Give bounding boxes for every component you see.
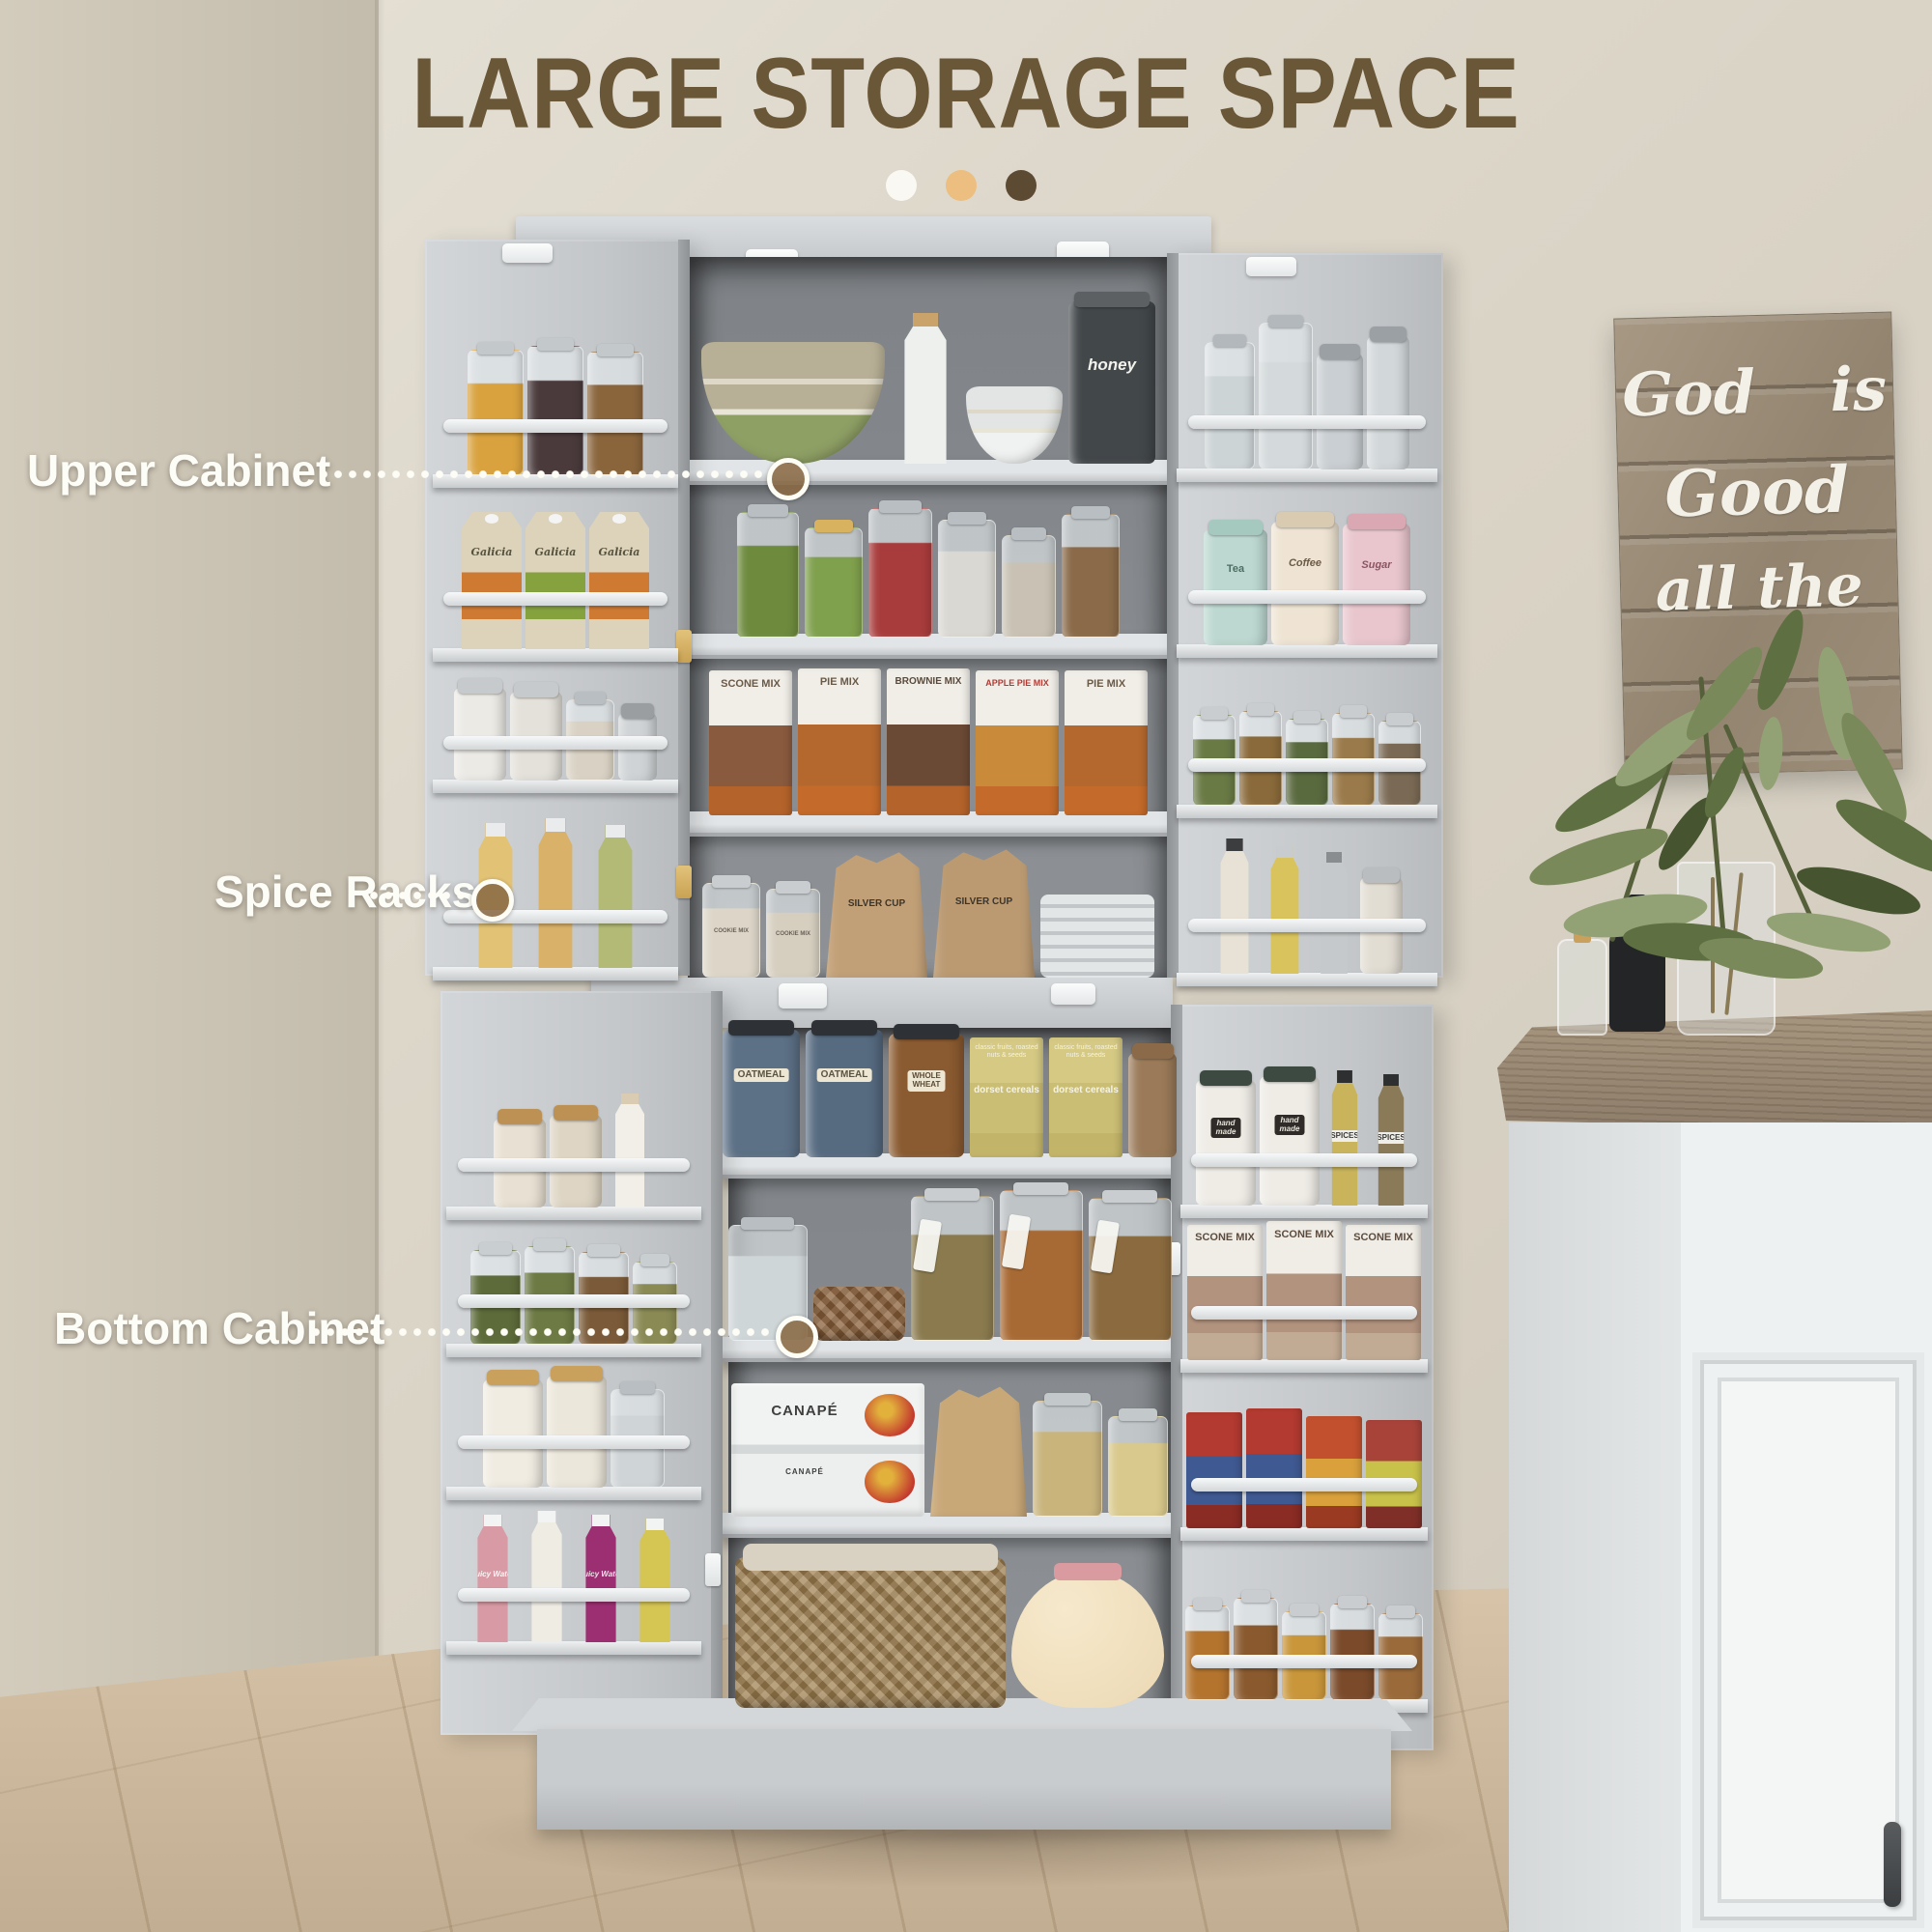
spice-rack-row: Juicy WaterJuicy Water bbox=[450, 1492, 697, 1642]
headline-dot-brown bbox=[1006, 170, 1037, 201]
wicker-bowl bbox=[813, 1287, 905, 1341]
scone-mix-box: SCONE MIX bbox=[1266, 1221, 1342, 1360]
hinge bbox=[705, 1553, 721, 1586]
handmade-canister: hand made bbox=[1260, 1076, 1320, 1206]
upper-shelf-4: COOKIE MIXCOOKIE MIXSILVER CUPSILVER CUP bbox=[688, 837, 1169, 978]
spice-rack-row bbox=[1180, 819, 1434, 974]
grinder bbox=[1262, 846, 1308, 974]
wood-lid-canister bbox=[483, 1379, 543, 1488]
upper-shelf-2 bbox=[688, 502, 1169, 638]
spice-jar bbox=[1332, 713, 1375, 806]
door-latch bbox=[1246, 257, 1296, 276]
coffee-bag: SILVER CUP bbox=[826, 847, 927, 978]
grain-jar bbox=[468, 350, 524, 475]
spices-bottle: SPICES bbox=[1323, 1070, 1366, 1206]
sugar-canister: Sugar bbox=[1343, 524, 1410, 645]
coffee-bag: SILVER CUP bbox=[933, 844, 1035, 978]
spice-jar bbox=[1239, 711, 1282, 806]
sign-text: God is bbox=[1615, 354, 1893, 431]
callout-marker bbox=[776, 1316, 818, 1358]
clip-jar bbox=[611, 1389, 665, 1488]
brownie-mix-box: BROWNIE MIX bbox=[887, 668, 970, 815]
scone-mix-box: SCONE MIX bbox=[1187, 1225, 1263, 1360]
spice-rack-row bbox=[1184, 1391, 1424, 1528]
handmade-canister: hand made bbox=[1196, 1080, 1256, 1206]
spice-rack-row bbox=[450, 1074, 697, 1207]
headline-dot-tan bbox=[946, 170, 977, 201]
canape-boxes: CANAPÉCANAPÉ bbox=[731, 1383, 924, 1517]
juice-bottle: Juicy Water bbox=[468, 1515, 518, 1642]
door-latch bbox=[502, 243, 553, 263]
glass-jar bbox=[1259, 323, 1313, 469]
small-bowl-stack bbox=[966, 386, 1063, 464]
spice-jar bbox=[1185, 1605, 1230, 1700]
juice-carton: Galicia bbox=[462, 512, 522, 649]
bean-bottle bbox=[587, 825, 643, 968]
door-latch bbox=[1051, 983, 1095, 1005]
cereal-box: dorset cerealsclassic fruits, roasted nu… bbox=[1049, 1037, 1122, 1157]
glass-bottle bbox=[1557, 939, 1607, 1036]
callout-line bbox=[311, 1327, 773, 1337]
sign-text: all the bbox=[1620, 552, 1898, 626]
juice-bottle bbox=[630, 1519, 680, 1642]
cookie-mix-jar: COOKIE MIX bbox=[766, 889, 820, 978]
cracker-packet bbox=[1306, 1416, 1362, 1528]
headline: LARGE STORAGE SPACE bbox=[412, 37, 1520, 152]
callout-upper-cabinet: Upper Cabinet bbox=[27, 444, 330, 497]
wood-lid-canister bbox=[547, 1376, 607, 1488]
salt-jar bbox=[510, 692, 562, 781]
milk-bottle bbox=[606, 1094, 654, 1207]
spice-rack-row: hand madehand madeSPICESSPICES bbox=[1184, 1061, 1424, 1206]
cracker-packet bbox=[1366, 1420, 1422, 1528]
cookie-mix-jar: COOKIE MIX bbox=[702, 883, 760, 978]
oatmeal-canister: OATMEAL bbox=[806, 1030, 883, 1157]
grain-jar bbox=[1108, 1416, 1168, 1517]
spice-rack-row bbox=[450, 1209, 697, 1345]
crock bbox=[1128, 1053, 1177, 1157]
small-jar bbox=[566, 699, 614, 781]
pecan-jar bbox=[1000, 1190, 1083, 1341]
juice-bottle bbox=[522, 1511, 572, 1642]
spice-rack-row bbox=[1180, 319, 1434, 469]
scone-mix-box: SCONE MIX bbox=[1346, 1225, 1421, 1360]
preserve-jar bbox=[868, 508, 932, 638]
upper-shelf-1: honey bbox=[688, 290, 1169, 464]
spice-jar bbox=[1378, 721, 1421, 806]
oatmeal-canister: OATMEAL bbox=[723, 1030, 800, 1157]
cookie-jar bbox=[1089, 1198, 1172, 1341]
tea-canister: Tea bbox=[1204, 529, 1267, 645]
cracker-packet bbox=[1246, 1408, 1302, 1528]
small-tin bbox=[618, 713, 657, 781]
juice-carton: Galicia bbox=[589, 512, 649, 649]
spice-rack-row bbox=[1184, 1580, 1424, 1700]
clay-pot bbox=[1011, 1571, 1164, 1708]
coffee-canister: Coffee bbox=[1271, 522, 1339, 645]
grinder bbox=[1312, 852, 1356, 974]
spice-jar bbox=[1286, 719, 1328, 806]
spice-rack-row: TeaCoffeeSugar bbox=[1180, 493, 1434, 645]
cabinet-base bbox=[537, 1729, 1391, 1830]
lower-shelf-4 bbox=[730, 1549, 1169, 1708]
callout-marker bbox=[767, 458, 810, 500]
shaker bbox=[1360, 877, 1403, 974]
spice-jar bbox=[1378, 1613, 1423, 1700]
callout-line bbox=[319, 469, 765, 479]
wall-corner bbox=[375, 0, 384, 1719]
spice-rack-row bbox=[437, 667, 674, 781]
pie-mix-box: PIE MIX bbox=[1065, 670, 1148, 815]
callout-marker bbox=[471, 879, 514, 922]
pie-mix-box: PIE MIX bbox=[798, 668, 881, 815]
cork-jar bbox=[494, 1119, 546, 1207]
scone-mix-box: SCONE MIX bbox=[709, 670, 792, 815]
headline-dot-cream bbox=[886, 170, 917, 201]
spice-rack-row: GaliciaGaliciaGalicia bbox=[437, 488, 674, 649]
storage-basket bbox=[735, 1557, 1006, 1708]
pasta-bottle bbox=[527, 818, 583, 968]
kraft-bag bbox=[930, 1381, 1027, 1517]
spice-rack-row bbox=[437, 319, 674, 475]
hinge bbox=[676, 630, 692, 663]
juice-carton: Galicia bbox=[526, 512, 585, 649]
cork-jar bbox=[550, 1115, 602, 1207]
bowl-stack bbox=[701, 342, 885, 464]
spice-jar bbox=[1282, 1611, 1326, 1700]
cereal-box: dorset cerealsclassic fruits, roasted nu… bbox=[970, 1037, 1043, 1157]
milk-jug bbox=[891, 313, 960, 464]
cookie-jar bbox=[911, 1196, 994, 1341]
hinge bbox=[676, 866, 692, 898]
upper-shelf-3: SCONE MIXPIE MIXBROWNIE MIXAPPLE PIE MIX… bbox=[688, 665, 1169, 815]
product-infographic: LARGE STORAGE SPACE God is Good all the … bbox=[0, 0, 1932, 1932]
lower-shelf-3: CANAPÉCANAPÉ bbox=[730, 1376, 1169, 1517]
spices-bottle: SPICES bbox=[1370, 1074, 1412, 1206]
sugar-jar bbox=[938, 520, 996, 638]
shaker bbox=[1317, 354, 1363, 469]
lower-shelf-1: OATMEALOATMEALWHOLE WHEATdorset cerealsc… bbox=[730, 1030, 1169, 1157]
apple-pie-mix-box: APPLE PIE MIX bbox=[976, 670, 1059, 815]
honey-jar: honey bbox=[1068, 301, 1155, 464]
grinder bbox=[1211, 838, 1258, 974]
plate-stack bbox=[1040, 895, 1154, 978]
flour-jar bbox=[1002, 535, 1056, 638]
pickle-jar bbox=[805, 527, 863, 638]
counter-side-panel bbox=[1509, 1122, 1681, 1932]
grain-jar bbox=[1062, 514, 1120, 638]
spice-jar bbox=[1193, 715, 1236, 806]
whole-wheat-canister: WHOLE WHEAT bbox=[889, 1034, 964, 1157]
counter-cabinet bbox=[1509, 1122, 1932, 1932]
spice-rack-row: SCONE MIXSCONE MIXSCONE MIX bbox=[1184, 1209, 1424, 1360]
spice-rack-row bbox=[1180, 682, 1434, 806]
granola-jar bbox=[587, 352, 643, 475]
juice-bottle: Juicy Water bbox=[576, 1515, 626, 1642]
salt-jar bbox=[454, 688, 506, 781]
glass-jar bbox=[1205, 342, 1255, 469]
callout-line bbox=[369, 891, 469, 900]
shaker bbox=[1367, 336, 1409, 469]
counter-door-handle bbox=[1884, 1822, 1901, 1907]
cracker-packet bbox=[1186, 1412, 1242, 1528]
grain-jar bbox=[1033, 1401, 1102, 1517]
spice-jar bbox=[1234, 1598, 1278, 1700]
spice-rack-row bbox=[450, 1345, 697, 1488]
berry-jar bbox=[527, 346, 583, 475]
door-latch bbox=[779, 983, 827, 1009]
pickle-jar bbox=[737, 512, 799, 638]
spice-jar bbox=[1330, 1604, 1375, 1700]
sign-text: Good bbox=[1618, 451, 1896, 533]
